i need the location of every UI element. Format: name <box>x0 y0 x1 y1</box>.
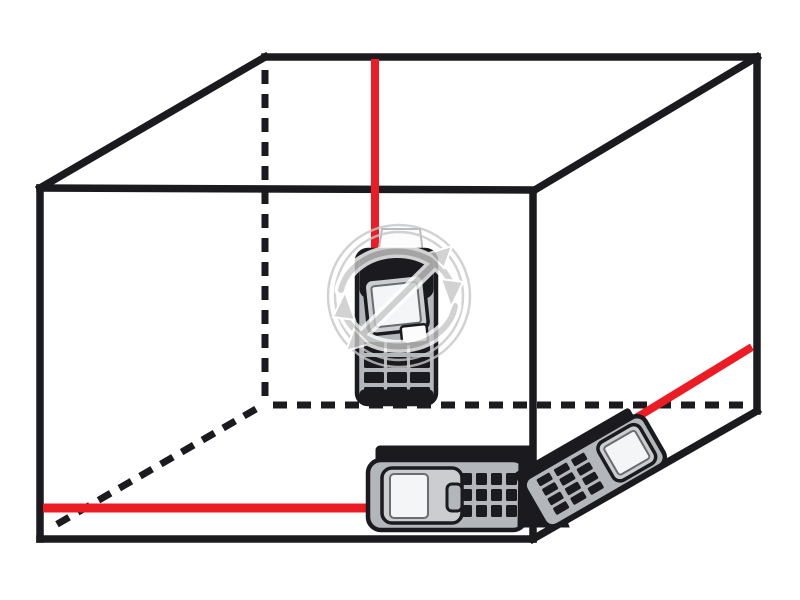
keypad-key <box>410 372 430 383</box>
laser-meter-tilted <box>514 404 668 531</box>
keypad-key <box>387 387 407 398</box>
keypad-key <box>461 505 472 517</box>
room-edge <box>533 57 757 191</box>
illustration-canvas <box>0 0 800 600</box>
keypad-key <box>476 505 487 517</box>
keypad-key <box>410 387 430 398</box>
keypad-key <box>387 372 407 383</box>
device-screen <box>390 474 428 518</box>
laser-meter-floor <box>368 446 536 530</box>
keypad-key <box>461 489 472 501</box>
keypad-key <box>491 489 502 501</box>
keypad-key <box>461 473 472 485</box>
keypad-key <box>364 387 384 398</box>
keypad-key <box>491 505 502 517</box>
room-edge <box>40 57 265 188</box>
keypad-key <box>491 473 502 485</box>
room-edge <box>40 188 533 190</box>
keypad-key <box>476 473 487 485</box>
device-grip-notch <box>447 484 462 511</box>
keypad-key <box>476 489 487 501</box>
keypad-key <box>506 505 517 517</box>
keypad-key <box>506 489 517 501</box>
keypad-key <box>364 372 384 383</box>
watermark-logo <box>328 225 470 367</box>
